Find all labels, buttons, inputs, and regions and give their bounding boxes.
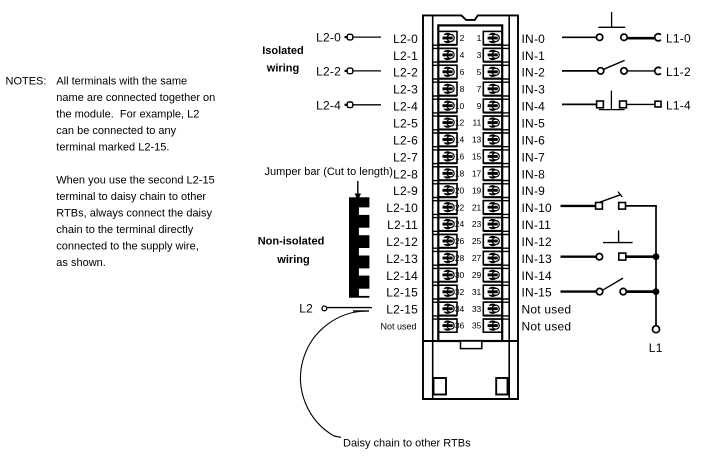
svg-text:16: 16 xyxy=(455,152,465,162)
svg-text:IN-13: IN-13 xyxy=(522,252,553,266)
svg-text:L2-0: L2-0 xyxy=(316,31,341,45)
svg-text:26: 26 xyxy=(455,236,465,246)
svg-text:L2-6: L2-6 xyxy=(393,133,418,147)
svg-text:chain to the terminal directly: chain to the terminal directly xyxy=(56,224,193,236)
svg-text:When you use the second L2-15: When you use the second L2-15 xyxy=(56,174,214,186)
svg-text:L2-13: L2-13 xyxy=(386,252,418,266)
svg-text:11: 11 xyxy=(472,118,481,128)
svg-text:5: 5 xyxy=(477,67,482,77)
svg-text:connected to the supply wire,: connected to the supply wire, xyxy=(56,240,198,252)
svg-text:IN-12: IN-12 xyxy=(522,235,553,249)
svg-text:25: 25 xyxy=(472,236,482,246)
svg-text:wiring: wiring xyxy=(276,254,309,266)
svg-text:Daisy chain to other RTBs: Daisy chain to other RTBs xyxy=(343,438,471,450)
svg-text:L2-0: L2-0 xyxy=(393,32,418,46)
svg-text:L2: L2 xyxy=(299,301,313,315)
svg-text:12: 12 xyxy=(455,118,465,128)
svg-text:IN-1: IN-1 xyxy=(522,49,546,63)
svg-text:the module. For example, L2: the module. For example, L2 xyxy=(56,108,199,120)
svg-text:6: 6 xyxy=(460,67,465,77)
svg-text:L2-4: L2-4 xyxy=(393,100,418,114)
svg-text:7: 7 xyxy=(477,84,482,94)
svg-text:All terminals with the same: All terminals with the same xyxy=(56,75,187,87)
svg-text:1: 1 xyxy=(477,33,482,43)
svg-text:L2-12: L2-12 xyxy=(386,235,418,249)
svg-text:terminal to daisy chain to oth: terminal to daisy chain to other xyxy=(56,191,206,203)
svg-text:L2-14: L2-14 xyxy=(386,269,418,283)
svg-text:IN-7: IN-7 xyxy=(522,150,546,164)
svg-text:20: 20 xyxy=(455,185,465,195)
svg-text:IN-11: IN-11 xyxy=(522,218,552,232)
svg-text:34: 34 xyxy=(455,304,465,314)
svg-text:IN-2: IN-2 xyxy=(522,66,546,80)
svg-text:2: 2 xyxy=(460,33,465,43)
svg-text:17: 17 xyxy=(472,169,482,179)
svg-text:23: 23 xyxy=(472,219,482,229)
svg-text:L2-8: L2-8 xyxy=(393,167,418,181)
svg-text:L2-1: L2-1 xyxy=(393,49,418,63)
svg-text:L2-15: L2-15 xyxy=(386,303,418,317)
svg-text:L2-10: L2-10 xyxy=(386,201,418,215)
svg-text:Non-isolated: Non-isolated xyxy=(258,236,325,248)
svg-text:8: 8 xyxy=(460,84,465,94)
svg-text:L2-2: L2-2 xyxy=(316,64,341,78)
svg-text:29: 29 xyxy=(472,270,482,280)
svg-text:IN-3: IN-3 xyxy=(522,83,546,97)
svg-text:L2-15: L2-15 xyxy=(386,286,418,300)
svg-text:L2-11: L2-11 xyxy=(387,218,418,232)
svg-text:Not used: Not used xyxy=(522,303,572,317)
svg-text:L2-2: L2-2 xyxy=(393,66,418,80)
svg-text:10: 10 xyxy=(455,101,465,111)
svg-text:IN-10: IN-10 xyxy=(522,201,553,215)
svg-text:18: 18 xyxy=(455,169,465,179)
svg-text:19: 19 xyxy=(472,185,482,195)
svg-text:30: 30 xyxy=(455,270,465,280)
svg-text:L2-9: L2-9 xyxy=(393,184,418,198)
svg-text:IN-0: IN-0 xyxy=(522,32,546,46)
svg-text:can be connected to any: can be connected to any xyxy=(56,125,176,137)
svg-text:IN-6: IN-6 xyxy=(522,133,546,147)
svg-text:RTBs, always connect the daisy: RTBs, always connect the daisy xyxy=(56,207,212,219)
svg-text:36: 36 xyxy=(455,321,465,331)
svg-text:Isolated: Isolated xyxy=(262,45,304,57)
svg-text:L2-3: L2-3 xyxy=(393,83,418,97)
svg-text:wiring: wiring xyxy=(266,63,299,75)
svg-text:NOTES:: NOTES: xyxy=(6,75,47,87)
svg-text:13: 13 xyxy=(472,135,482,145)
svg-text:22: 22 xyxy=(455,202,465,212)
svg-text:31: 31 xyxy=(472,287,482,297)
svg-text:IN-5: IN-5 xyxy=(522,117,546,131)
svg-text:27: 27 xyxy=(472,253,482,263)
svg-text:IN-8: IN-8 xyxy=(522,167,546,181)
svg-text:IN-4: IN-4 xyxy=(522,100,546,114)
svg-text:Not used: Not used xyxy=(380,322,416,332)
svg-text:Jumper bar (Cut to length): Jumper bar (Cut to length) xyxy=(265,166,393,178)
svg-text:9: 9 xyxy=(477,101,482,111)
svg-text:14: 14 xyxy=(455,135,465,145)
svg-text:L2-7: L2-7 xyxy=(393,150,418,164)
svg-text:L2-5: L2-5 xyxy=(393,117,418,131)
svg-text:33: 33 xyxy=(472,304,482,314)
svg-text:Not used: Not used xyxy=(522,320,572,334)
svg-text:21: 21 xyxy=(472,202,482,212)
svg-text:L1-2: L1-2 xyxy=(666,65,691,79)
svg-text:L2-4: L2-4 xyxy=(316,98,341,112)
svg-text:3: 3 xyxy=(477,50,482,60)
svg-text:32: 32 xyxy=(455,287,465,297)
svg-text:15: 15 xyxy=(472,152,482,162)
svg-text:L1-4: L1-4 xyxy=(666,98,691,112)
svg-text:4: 4 xyxy=(460,50,465,60)
svg-text:35: 35 xyxy=(472,321,482,331)
svg-text:24: 24 xyxy=(455,219,465,229)
svg-text:as shown.: as shown. xyxy=(56,257,106,269)
svg-text:terminal marked L2-15.: terminal marked L2-15. xyxy=(56,141,169,153)
svg-text:name are connected together on: name are connected together on xyxy=(56,92,215,104)
svg-text:28: 28 xyxy=(455,253,465,263)
svg-text:IN-9: IN-9 xyxy=(522,184,546,198)
svg-text:IN-15: IN-15 xyxy=(522,286,553,300)
svg-text:L1-0: L1-0 xyxy=(666,32,691,46)
svg-text:IN-14: IN-14 xyxy=(522,269,553,283)
svg-text:L1: L1 xyxy=(649,341,663,355)
